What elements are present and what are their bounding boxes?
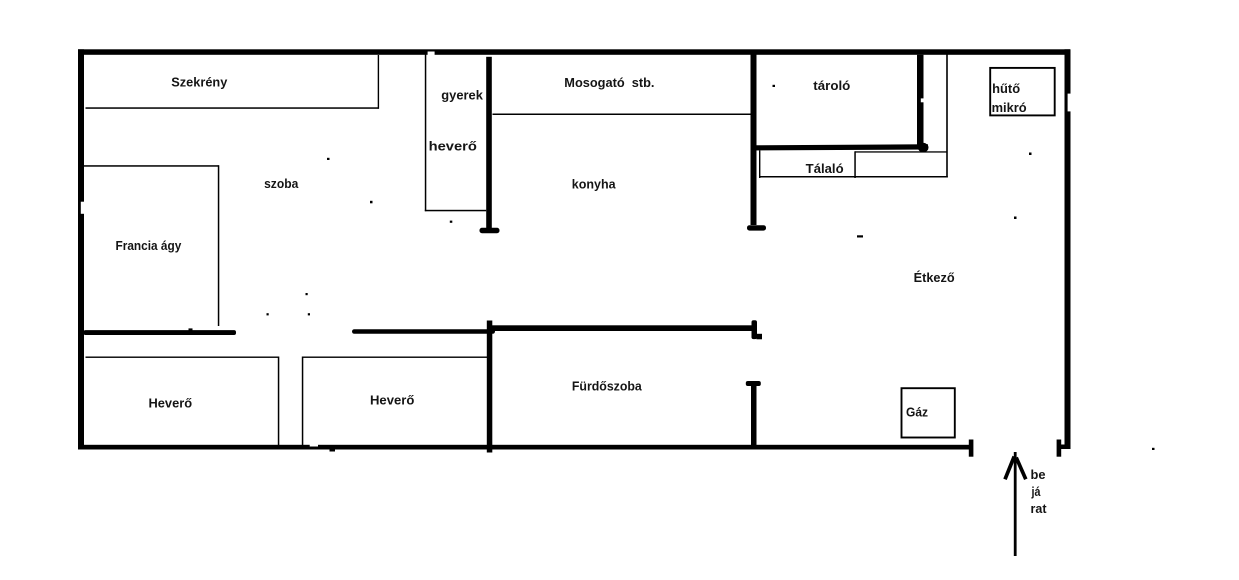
svg-text:szoba: szoba <box>264 177 299 191</box>
svg-text:hűtő: hűtő <box>992 82 1020 96</box>
svg-text:Heverő: Heverő <box>370 394 415 408</box>
svg-text:Szekrény: Szekrény <box>171 76 227 90</box>
svg-text:konyha: konyha <box>572 178 617 192</box>
svg-text:rat: rat <box>1031 502 1048 516</box>
svg-text:Heverő: Heverő <box>149 397 193 411</box>
svg-text:tároló: tároló <box>813 79 850 93</box>
svg-text:Mosogató stb.: Mosogató stb. <box>564 76 654 90</box>
svg-text:heverő: heverő <box>429 140 478 154</box>
svg-text:Fürdőszoba: Fürdőszoba <box>572 379 643 393</box>
svg-text:gyerek: gyerek <box>441 89 484 103</box>
svg-text:Étkező: Étkező <box>914 270 955 285</box>
svg-text:já: já <box>1031 485 1042 499</box>
svg-text:Gáz: Gáz <box>906 405 928 419</box>
svg-text:be: be <box>1031 468 1046 482</box>
svg-text:Tálaló: Tálaló <box>806 162 844 176</box>
svg-text:mikró: mikró <box>992 101 1027 115</box>
svg-text:Francia ágy: Francia ágy <box>116 239 182 253</box>
